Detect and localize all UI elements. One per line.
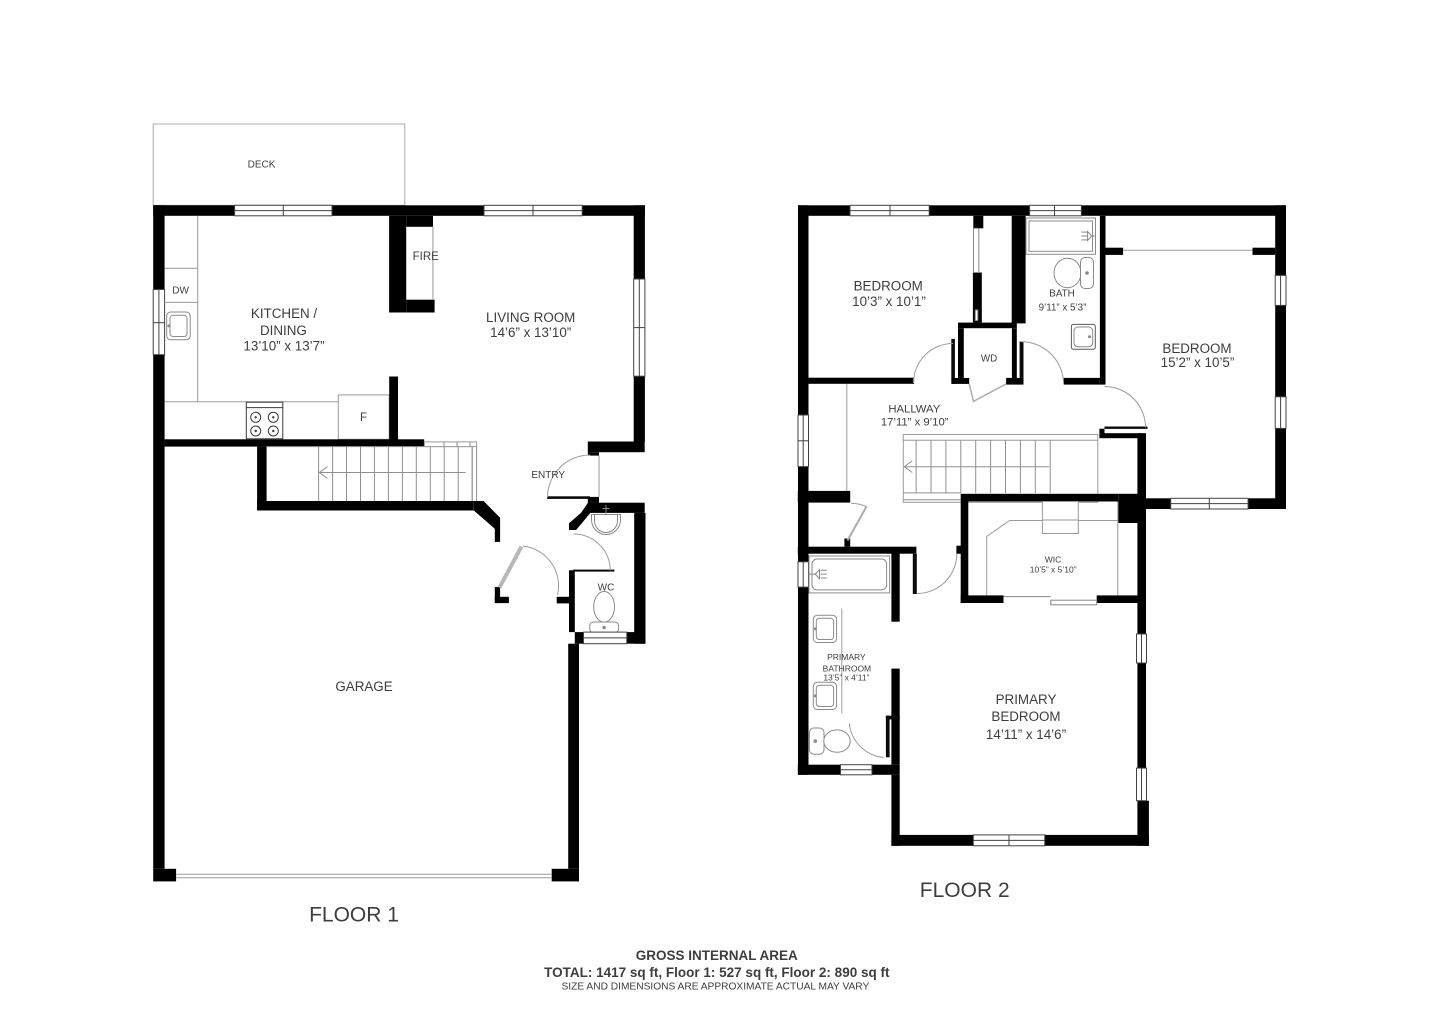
svg-text:FLOOR 1: FLOOR 1 — [309, 903, 399, 926]
svg-text:TOTAL: 1417 sq ft, Floor 1: 52: TOTAL: 1417 sq ft, Floor 1: 527 sq ft, F… — [544, 965, 890, 980]
svg-text:10’5” x 5’10”: 10’5” x 5’10” — [1030, 565, 1077, 575]
svg-text:15’2” x 10’5”: 15’2” x 10’5” — [1161, 355, 1235, 370]
svg-text:KITCHEN /: KITCHEN / — [251, 306, 317, 321]
svg-text:PRIMARY: PRIMARY — [996, 692, 1057, 707]
svg-text:DECK: DECK — [248, 160, 276, 171]
svg-text:BEDROOM: BEDROOM — [854, 278, 923, 293]
svg-text:WIC: WIC — [1045, 555, 1062, 565]
svg-text:17’11” x 9’10”: 17’11” x 9’10” — [881, 417, 949, 429]
svg-text:10’3” x 10’1”: 10’3” x 10’1” — [852, 294, 926, 309]
svg-text:9’11” x 5’3”: 9’11” x 5’3” — [1039, 303, 1087, 314]
svg-text:13’10” x 13’7”: 13’10” x 13’7” — [243, 338, 324, 353]
svg-text:SIZE AND DIMENSIONS ARE APPROX: SIZE AND DIMENSIONS ARE APPROXIMATE ACTU… — [562, 982, 870, 993]
svg-text:F: F — [360, 412, 367, 424]
svg-text:WD: WD — [981, 354, 997, 365]
svg-text:FLOOR 2: FLOOR 2 — [920, 879, 1010, 902]
svg-text:GARAGE: GARAGE — [335, 679, 392, 694]
svg-text:FIRE: FIRE — [413, 251, 440, 263]
svg-text:HALLWAY: HALLWAY — [888, 404, 940, 416]
svg-text:LIVING ROOM: LIVING ROOM — [486, 310, 575, 325]
svg-text:14’6” x 13’10”: 14’6” x 13’10” — [490, 325, 571, 340]
svg-text:BEDROOM: BEDROOM — [1162, 341, 1231, 356]
svg-text:DW: DW — [172, 286, 189, 297]
svg-text:PRIMARY: PRIMARY — [827, 652, 866, 662]
svg-text:GROSS INTERNAL AREA: GROSS INTERNAL AREA — [636, 948, 798, 963]
svg-text:ENTRY: ENTRY — [531, 470, 565, 481]
svg-text:14’11” x 14’6”: 14’11” x 14’6” — [986, 727, 1066, 742]
svg-text:DINING: DINING — [260, 323, 307, 338]
svg-text:BATH: BATH — [1049, 289, 1074, 300]
svg-text:13’5” x 4’11”: 13’5” x 4’11” — [823, 673, 869, 683]
svg-text:BEDROOM: BEDROOM — [991, 709, 1060, 724]
